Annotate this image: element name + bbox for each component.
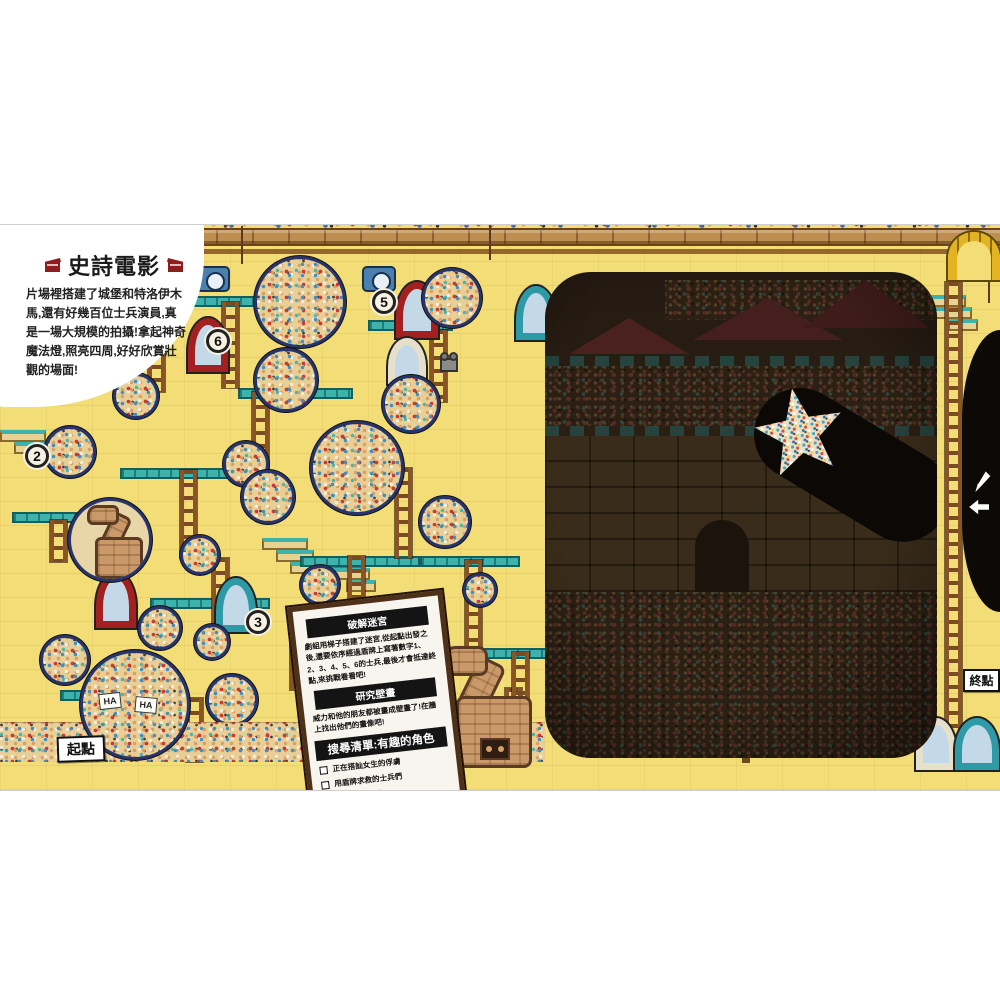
crowd-circle — [40, 635, 90, 685]
crowd-circle — [194, 624, 230, 660]
end-sign: 終點 — [963, 669, 1000, 692]
trojan-horse-vignette — [68, 498, 152, 582]
task-panel: 破解迷宮 劇組用梯子搭建了迷宮,從起點出發之後,還要依序經過盾牌上寫著數字1、2… — [287, 590, 467, 790]
crowd-circle — [206, 674, 258, 726]
number-shield: 2 — [25, 444, 49, 468]
clapperboard-icon — [165, 256, 185, 274]
platform — [120, 468, 230, 479]
crowd-circle — [419, 496, 471, 548]
number-shield: 3 — [246, 610, 270, 634]
laugh-card: HA — [134, 696, 157, 714]
stone-step — [0, 430, 46, 442]
magic-pen-icon — [972, 470, 992, 494]
pull-left-arrow-icon — [968, 498, 992, 516]
number-shield: 6 — [206, 329, 230, 353]
crowd-circle — [241, 470, 295, 524]
spotlight-icon — [362, 266, 396, 292]
scene-title-row: 史詩電影 — [30, 249, 198, 281]
ladder — [945, 282, 962, 745]
crowd-circle — [44, 426, 96, 478]
arch-door — [955, 718, 999, 770]
page-title: 史詩電影 — [68, 249, 160, 281]
illustrated-scene: 123456 HA HA — [0, 225, 1000, 790]
crowd-circle — [463, 573, 497, 607]
crowd-circle — [422, 268, 482, 328]
crowd-circle — [382, 375, 440, 433]
gold-arch-door — [948, 232, 1000, 280]
checkbox[interactable] — [319, 766, 328, 775]
number-shield: 5 — [372, 290, 396, 314]
crowd-circle — [138, 606, 182, 650]
intro-text: 片場裡搭建了城堡和特洛伊木馬,還有好幾百位士兵演員,真是一場大規模的拍攝!拿起神… — [26, 285, 188, 380]
crowd-circle — [310, 421, 404, 515]
pulley-rope — [241, 226, 243, 264]
start-sign: 起點 — [57, 735, 106, 763]
checkbox[interactable] — [321, 781, 330, 790]
crowd-circle — [254, 348, 318, 412]
crowd-circle — [180, 535, 220, 575]
film-camera-icon — [440, 358, 458, 372]
torch-pull-tab[interactable] — [962, 330, 1000, 612]
stone-step — [262, 538, 308, 550]
crowd-circle — [254, 256, 346, 348]
pulley-rope — [489, 226, 491, 260]
crowd-circle — [300, 565, 340, 605]
ladder — [50, 520, 67, 562]
dark-reveal-panel — [545, 272, 937, 758]
ladder — [348, 556, 365, 604]
trojan-window — [480, 738, 510, 760]
laugh-card: HA — [98, 692, 122, 710]
book-spread-page: 123456 HA HA — [0, 0, 1000, 1000]
clapperboard-icon — [43, 256, 63, 274]
star-light-cutout — [744, 378, 855, 489]
